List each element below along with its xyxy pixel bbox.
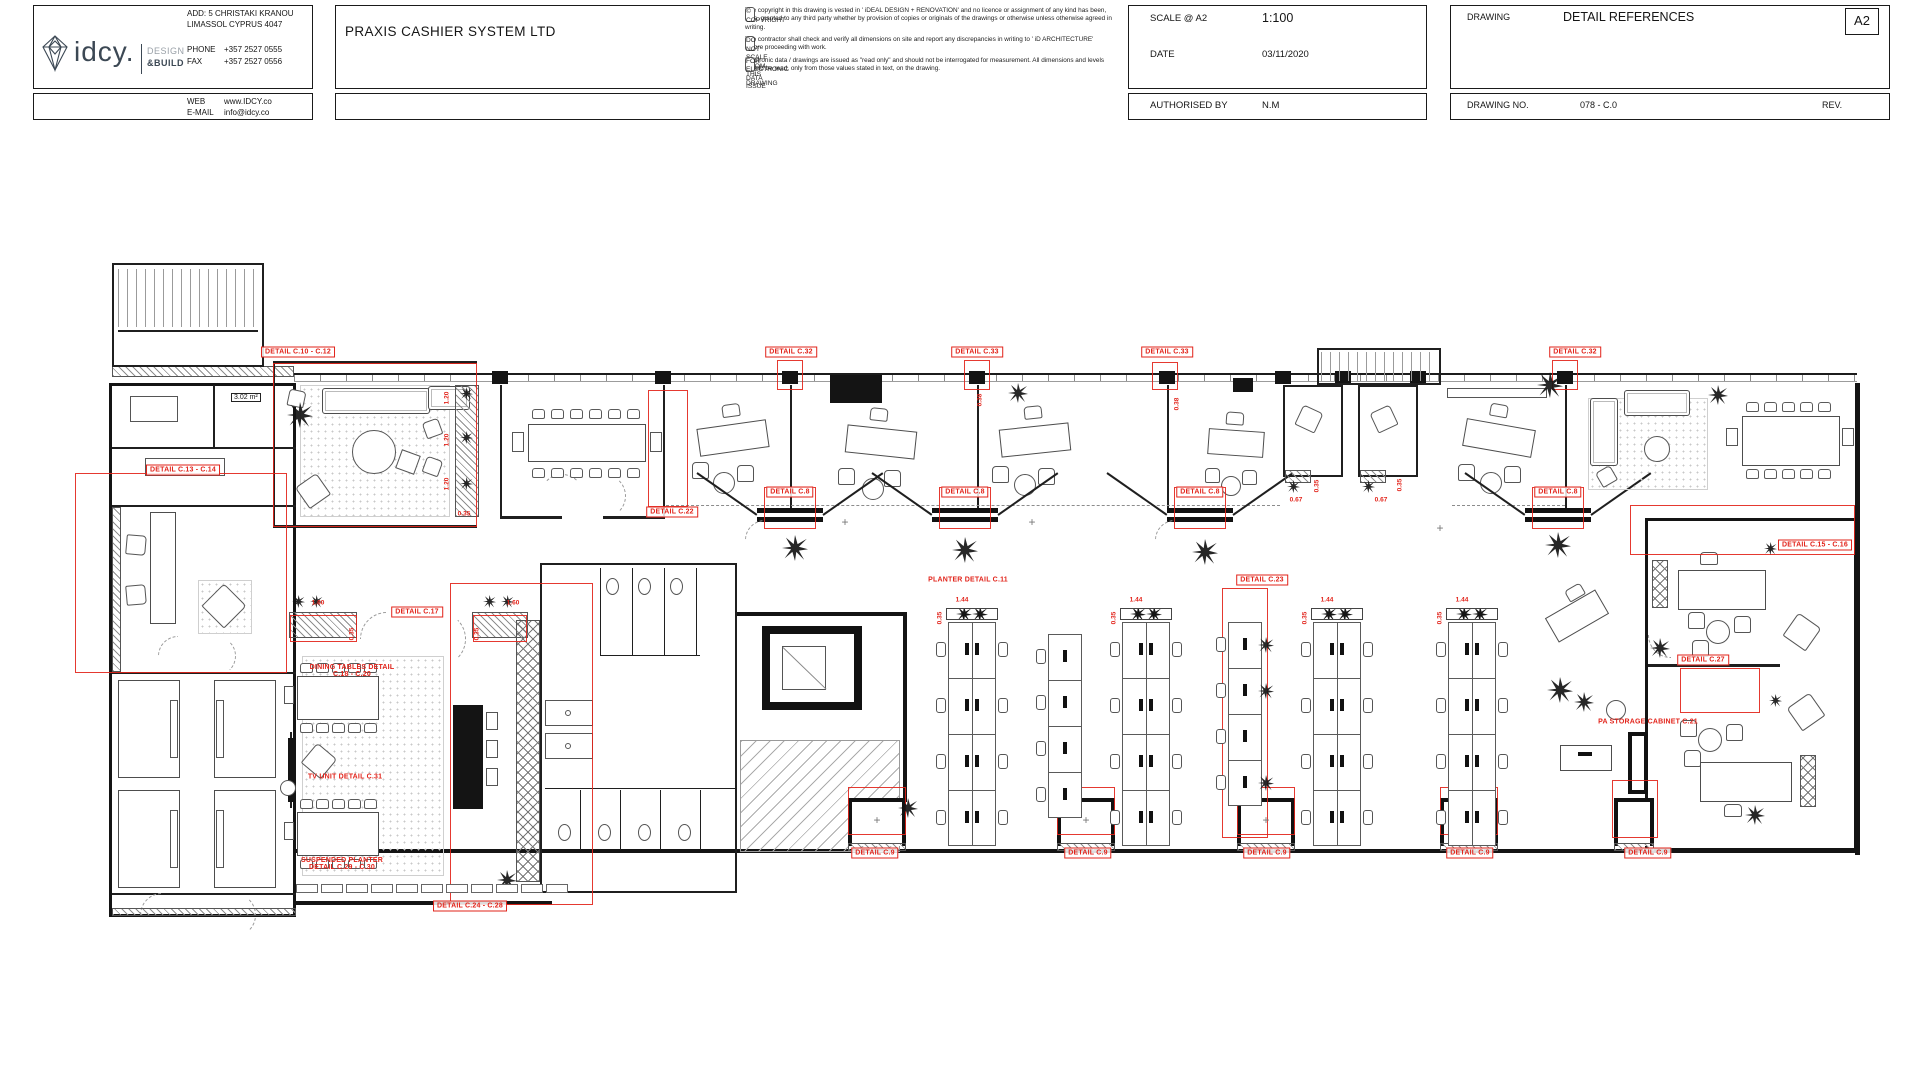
- gch: [1205, 468, 1220, 483]
- plant-icon: [1008, 383, 1028, 403]
- plant-icon: [1537, 372, 1563, 398]
- vstr: [118, 269, 258, 327]
- dimension-label: 0.38: [1174, 398, 1181, 411]
- chair: [1216, 683, 1226, 698]
- toilet: [678, 824, 691, 841]
- plan-element: [1537, 372, 1563, 398]
- desk-planter: [1120, 608, 1172, 620]
- chair: [1800, 402, 1813, 412]
- office-desk: [696, 419, 769, 456]
- plan-element: [1708, 385, 1728, 405]
- chair: [1436, 642, 1446, 657]
- lineV: [664, 568, 665, 656]
- detail-label: DETAIL C.33: [1141, 347, 1193, 358]
- chair: [1110, 754, 1120, 769]
- desk-bank: [1448, 622, 1496, 846]
- lineV: [1167, 385, 1169, 510]
- detail-label: TV UNIT DETAIL C.31: [308, 774, 382, 781]
- plan-element: [1192, 539, 1218, 565]
- chair: [332, 799, 345, 809]
- plan-element: [1472, 608, 1488, 620]
- plant-icon: [952, 537, 978, 563]
- detail-label: DETAIL C.13 - C.14: [146, 465, 220, 476]
- chair: [1036, 695, 1046, 710]
- plant-icon: [1362, 480, 1375, 493]
- plan-element: [1456, 608, 1472, 620]
- plan-element: [1258, 775, 1274, 791]
- plan-element: [1146, 608, 1162, 620]
- chair: [1436, 754, 1446, 769]
- plan-element: [972, 608, 988, 620]
- detail-zone: [1680, 668, 1760, 713]
- plant-icon: [460, 387, 473, 400]
- desk-monitor: [965, 755, 969, 767]
- desk-monitor: [1330, 755, 1334, 767]
- chair: [1216, 775, 1226, 790]
- fr: [170, 700, 178, 758]
- office-desk: [999, 422, 1072, 457]
- plan-element: [1258, 683, 1274, 699]
- plan-element: [898, 798, 918, 818]
- plant-icon: [1192, 539, 1218, 565]
- desk-planter: [1446, 608, 1498, 620]
- chair: [998, 642, 1008, 657]
- desk-planter: [1311, 608, 1363, 620]
- chair: [532, 468, 545, 478]
- desk-monitor: [1149, 755, 1153, 767]
- desk-monitor: [1475, 643, 1479, 655]
- mul: [1275, 371, 1291, 384]
- dimension-label: 0.35: [1111, 612, 1118, 625]
- tv-unit: [1233, 378, 1253, 392]
- desk-monitor: [1340, 755, 1344, 767]
- detail-zone: [1152, 362, 1178, 390]
- chair: [300, 799, 313, 809]
- detail-label: DETAIL C.32: [765, 347, 817, 358]
- task-chair: [721, 403, 741, 418]
- plant-icon: [1258, 637, 1274, 653]
- suspended-planter-box: [321, 884, 343, 893]
- plan-element: [460, 477, 473, 490]
- chair: [284, 686, 294, 704]
- toilet: [598, 824, 611, 841]
- desk-monitor: [1475, 755, 1479, 767]
- survey-cross: +: [1436, 521, 1443, 535]
- suspended-planter-box: [546, 884, 568, 893]
- plan-element: [956, 608, 972, 620]
- detail-label: DETAIL C.15 - C.16: [1778, 540, 1852, 551]
- desk-monitor: [1063, 742, 1067, 754]
- chair: [316, 799, 329, 809]
- plant-icon: [1287, 480, 1300, 493]
- gch: [838, 468, 855, 485]
- plan-element: [1574, 692, 1594, 712]
- chair: [1110, 810, 1120, 825]
- plan-element: [1192, 539, 1218, 565]
- plan-element: [287, 402, 313, 428]
- chair: [1301, 698, 1311, 713]
- desk-monitor: [1139, 755, 1143, 767]
- plan-element: [460, 431, 473, 444]
- chair: [1498, 754, 1508, 769]
- desk-monitor: [1139, 811, 1143, 823]
- office-desk: [1207, 428, 1265, 458]
- chair: [1764, 402, 1777, 412]
- detail-label: DETAIL C.9: [1446, 848, 1493, 859]
- chair: [1498, 698, 1508, 713]
- desk-monitor: [975, 643, 979, 655]
- chair: [1172, 810, 1182, 825]
- plan-element: [1764, 542, 1777, 555]
- plan-element: [460, 387, 473, 400]
- plan-element: [1258, 637, 1274, 653]
- plan-element: [1769, 694, 1782, 707]
- phone-booth: [1358, 385, 1418, 477]
- toilet: [606, 578, 619, 595]
- chair: [1818, 402, 1831, 412]
- plan-element: [1472, 608, 1488, 620]
- dimension-label: 1.44: [1130, 597, 1143, 604]
- survey-cross: +: [841, 515, 848, 529]
- chair: [1782, 402, 1795, 412]
- detail-label: SUSPENDED PLANTER DETAIL C.29 - C.30: [301, 857, 383, 871]
- detail-label: DETAIL C.8: [941, 487, 988, 498]
- chair: [1726, 428, 1738, 446]
- dimension-label: 1.60: [312, 600, 325, 607]
- chair: [1301, 810, 1311, 825]
- chair: [608, 409, 621, 419]
- desk-monitor: [1465, 811, 1469, 823]
- plan-element: [1545, 532, 1571, 558]
- desk-monitor: [965, 699, 969, 711]
- dimension-label: 0.38: [977, 394, 984, 407]
- lineV: [620, 790, 621, 850]
- dimension-label: 0.35: [1302, 612, 1309, 625]
- chair: [998, 754, 1008, 769]
- chair: [332, 723, 345, 733]
- fr: [216, 810, 224, 868]
- task-chair: [1226, 411, 1245, 425]
- dimension-label: 0.35: [1314, 480, 1321, 493]
- cabinet: [1652, 560, 1668, 608]
- lineV: [213, 385, 215, 447]
- chair: [570, 468, 583, 478]
- suspended-planter-box: [496, 884, 518, 893]
- cabinet: [1800, 755, 1816, 807]
- lineV: [660, 790, 661, 850]
- chair: [316, 723, 329, 733]
- chair: [1301, 642, 1311, 657]
- chair: [1216, 637, 1226, 652]
- chair: [532, 409, 545, 419]
- dimension-label: 0.35: [937, 612, 944, 625]
- plan-element: [483, 595, 496, 608]
- plant-icon: [1545, 532, 1571, 558]
- survey-cross: +: [873, 813, 880, 827]
- plan-element: [898, 798, 918, 818]
- plan-element: [1708, 385, 1728, 405]
- desk-monitor: [1340, 811, 1344, 823]
- plan-element: [1258, 637, 1274, 653]
- chair: [1782, 469, 1795, 479]
- suspended-planter-box: [371, 884, 393, 893]
- suspended-planter-box: [396, 884, 418, 893]
- office-desk: [845, 424, 918, 459]
- meeting-wall: [500, 385, 502, 518]
- detail-label: DETAIL C.32: [1549, 347, 1601, 358]
- dining-table: [297, 676, 379, 720]
- dining-table: [297, 812, 379, 856]
- drawing-sheet: idcy. DESIGN &BUILD ADD: 5 CHRISTAKI KRA…: [0, 0, 1920, 1080]
- survey-cross: +: [1028, 515, 1035, 529]
- toilet: [670, 578, 683, 595]
- toilet: [638, 824, 651, 841]
- plan-element: [1545, 532, 1571, 558]
- chair: [1036, 787, 1046, 802]
- detail-label: DETAIL C.33: [951, 347, 1003, 358]
- chair: [551, 409, 564, 419]
- dimension-label: 1.44: [956, 597, 969, 604]
- desk-monitor: [1465, 643, 1469, 655]
- vstr: [1321, 352, 1437, 381]
- gch: [1684, 750, 1701, 767]
- plan-element: [287, 402, 313, 428]
- gch: [737, 465, 754, 482]
- chair: [589, 468, 602, 478]
- chair: [589, 409, 602, 419]
- plan-element: [460, 431, 473, 444]
- desk-monitor: [1243, 684, 1247, 696]
- chair: [1498, 810, 1508, 825]
- desk-bank: [1122, 622, 1170, 846]
- detail-label: DETAIL C.22: [646, 507, 698, 518]
- plan-element: [1547, 677, 1573, 703]
- plan-element: [952, 537, 978, 563]
- desk-monitor: [1063, 650, 1067, 662]
- chair: [936, 810, 946, 825]
- chair: [998, 810, 1008, 825]
- dimension-label: 1.44: [1456, 597, 1469, 604]
- chair: [998, 698, 1008, 713]
- detail-label: DETAIL C.9: [1624, 848, 1671, 859]
- detail-zone: [648, 390, 688, 507]
- plan-element: [1146, 608, 1162, 620]
- plan-element: [1130, 608, 1146, 620]
- plant-icon: [1769, 694, 1782, 707]
- plant-icon: [1258, 683, 1274, 699]
- plant-icon: [1650, 638, 1670, 658]
- plan-element: [1650, 638, 1670, 658]
- chair: [300, 723, 313, 733]
- task-chair: [869, 407, 888, 422]
- plan-element: [1456, 608, 1472, 620]
- desk-monitor: [1063, 788, 1067, 800]
- plant-icon: [287, 402, 313, 428]
- plan-element: [1650, 638, 1670, 658]
- detail-zone: [290, 615, 357, 642]
- detail-label: PA STORAGE CABINET C.21: [1598, 719, 1698, 726]
- desk-monitor: [1475, 811, 1479, 823]
- plan-element: [1130, 608, 1146, 620]
- chair: [551, 468, 564, 478]
- lineH: [500, 516, 562, 519]
- plant-icon: [1574, 692, 1594, 712]
- dimension-label: 0.67: [1290, 497, 1303, 504]
- chair: [1800, 469, 1813, 479]
- mul: [492, 371, 508, 384]
- desk-monitor: [1330, 811, 1334, 823]
- chair: [1498, 642, 1508, 657]
- chair: [936, 642, 946, 657]
- detail-zone: [75, 473, 287, 673]
- lineH: [112, 893, 296, 895]
- dimension-label: 0.35: [349, 628, 356, 641]
- plant-icon: [460, 477, 473, 490]
- round-table: [862, 478, 884, 500]
- gch: [992, 466, 1009, 483]
- chair: [1363, 810, 1373, 825]
- plan-element: [292, 595, 305, 608]
- gch: [1504, 466, 1521, 483]
- dimension-label: 1.20: [444, 478, 451, 491]
- area-note: 3.02 m²: [231, 393, 261, 402]
- gch: [1242, 470, 1257, 485]
- dimension-label: 1.44: [1321, 597, 1334, 604]
- desk-monitor: [1243, 776, 1247, 788]
- suspended-planter-box: [521, 884, 543, 893]
- plan-element: [1362, 480, 1375, 493]
- chair: [1436, 698, 1446, 713]
- chair: [1110, 698, 1120, 713]
- desk-monitor: [1340, 699, 1344, 711]
- chair: [512, 432, 524, 452]
- plant-icon: [1258, 775, 1274, 791]
- plant-icon: [483, 595, 496, 608]
- lineV: [696, 568, 697, 656]
- plan-element: [483, 595, 496, 608]
- lineH: [118, 330, 258, 332]
- chair: [1363, 754, 1373, 769]
- detail-label: PLANTER DETAIL C.11: [928, 577, 1008, 584]
- plan-element: [1769, 694, 1782, 707]
- desk-monitor: [1149, 811, 1153, 823]
- detail-label: DETAIL C.27: [1677, 655, 1729, 666]
- detail-label: DETAIL C.23: [1236, 575, 1288, 586]
- gch: [1726, 724, 1743, 741]
- h45: [112, 908, 296, 916]
- plant-icon: [292, 595, 305, 608]
- chair: [627, 468, 640, 478]
- desk-monitor: [965, 643, 969, 655]
- plan-element: [1321, 608, 1337, 620]
- conference-table: [528, 424, 646, 462]
- plan-element: [782, 535, 808, 561]
- plan-element: [956, 608, 972, 620]
- round-table: [1706, 620, 1730, 644]
- suspended-planter-box: [421, 884, 443, 893]
- lineH: [112, 447, 296, 449]
- chair: [1436, 810, 1446, 825]
- plan-element: [1547, 677, 1573, 703]
- detail-label: DETAIL C.10 - C.12: [261, 347, 335, 358]
- detail-label: DETAIL C.24 - C.28: [433, 901, 507, 912]
- fr: [216, 700, 224, 758]
- plan-element: [1008, 383, 1028, 403]
- task-chair: [1023, 405, 1042, 420]
- chair: [364, 723, 377, 733]
- desk-monitor: [1465, 699, 1469, 711]
- qa: [582, 474, 626, 518]
- suspended-planter-box: [471, 884, 493, 893]
- chair: [348, 799, 361, 809]
- dimension-label: 1.20: [444, 392, 451, 405]
- chair: [1036, 649, 1046, 664]
- desk-monitor: [1063, 696, 1067, 708]
- tv-unit: [830, 375, 882, 403]
- sofa: [1624, 390, 1690, 416]
- plan-element: [1574, 692, 1594, 712]
- qa: [540, 474, 584, 518]
- desk-monitor: [1340, 643, 1344, 655]
- office-desk: [1462, 418, 1536, 458]
- window-band-top: [294, 373, 1857, 382]
- chair: [1764, 469, 1777, 479]
- desk-monitor: [975, 755, 979, 767]
- plan-element: [1008, 383, 1028, 403]
- chair: [936, 698, 946, 713]
- dimension-label: 0.35: [1397, 479, 1404, 492]
- desk-monitor: [1149, 643, 1153, 655]
- suspended-planter-box: [296, 884, 318, 893]
- sideboard: [1447, 388, 1547, 398]
- sofa: [1590, 398, 1618, 466]
- chair: [1301, 754, 1311, 769]
- plan-element: [1258, 775, 1274, 791]
- desk-monitor: [1243, 730, 1247, 742]
- chair: [1363, 698, 1373, 713]
- chair: [1818, 469, 1831, 479]
- desk: [1560, 745, 1612, 771]
- plan-element: [1362, 480, 1375, 493]
- plan-element: [1764, 542, 1777, 555]
- plant-icon: [1547, 677, 1573, 703]
- dimension-label: 1.60: [507, 600, 520, 607]
- suspended-planter-box: [446, 884, 468, 893]
- plan-element: [1337, 608, 1353, 620]
- chair: [570, 409, 583, 419]
- plant-icon: [1745, 805, 1765, 825]
- exec-desk: [1700, 762, 1792, 802]
- dimension-label: 1.20: [444, 434, 451, 447]
- round-table: [1014, 474, 1036, 496]
- chair: [627, 409, 640, 419]
- desk-bank: [948, 622, 996, 846]
- chair: [1172, 642, 1182, 657]
- desk-monitor: [1330, 699, 1334, 711]
- desk-monitor: [1149, 699, 1153, 711]
- desk-monitor: [1465, 755, 1469, 767]
- desk-bank: [1313, 622, 1361, 846]
- gch: [1734, 616, 1751, 633]
- plan-element: [1258, 683, 1274, 699]
- round-table: [1698, 728, 1722, 752]
- survey-cross: +: [1262, 813, 1269, 827]
- lineV: [632, 568, 633, 656]
- plan-element: [782, 535, 808, 561]
- task-chair: [1489, 403, 1509, 419]
- dg: [1106, 472, 1167, 516]
- chair: [1172, 754, 1182, 769]
